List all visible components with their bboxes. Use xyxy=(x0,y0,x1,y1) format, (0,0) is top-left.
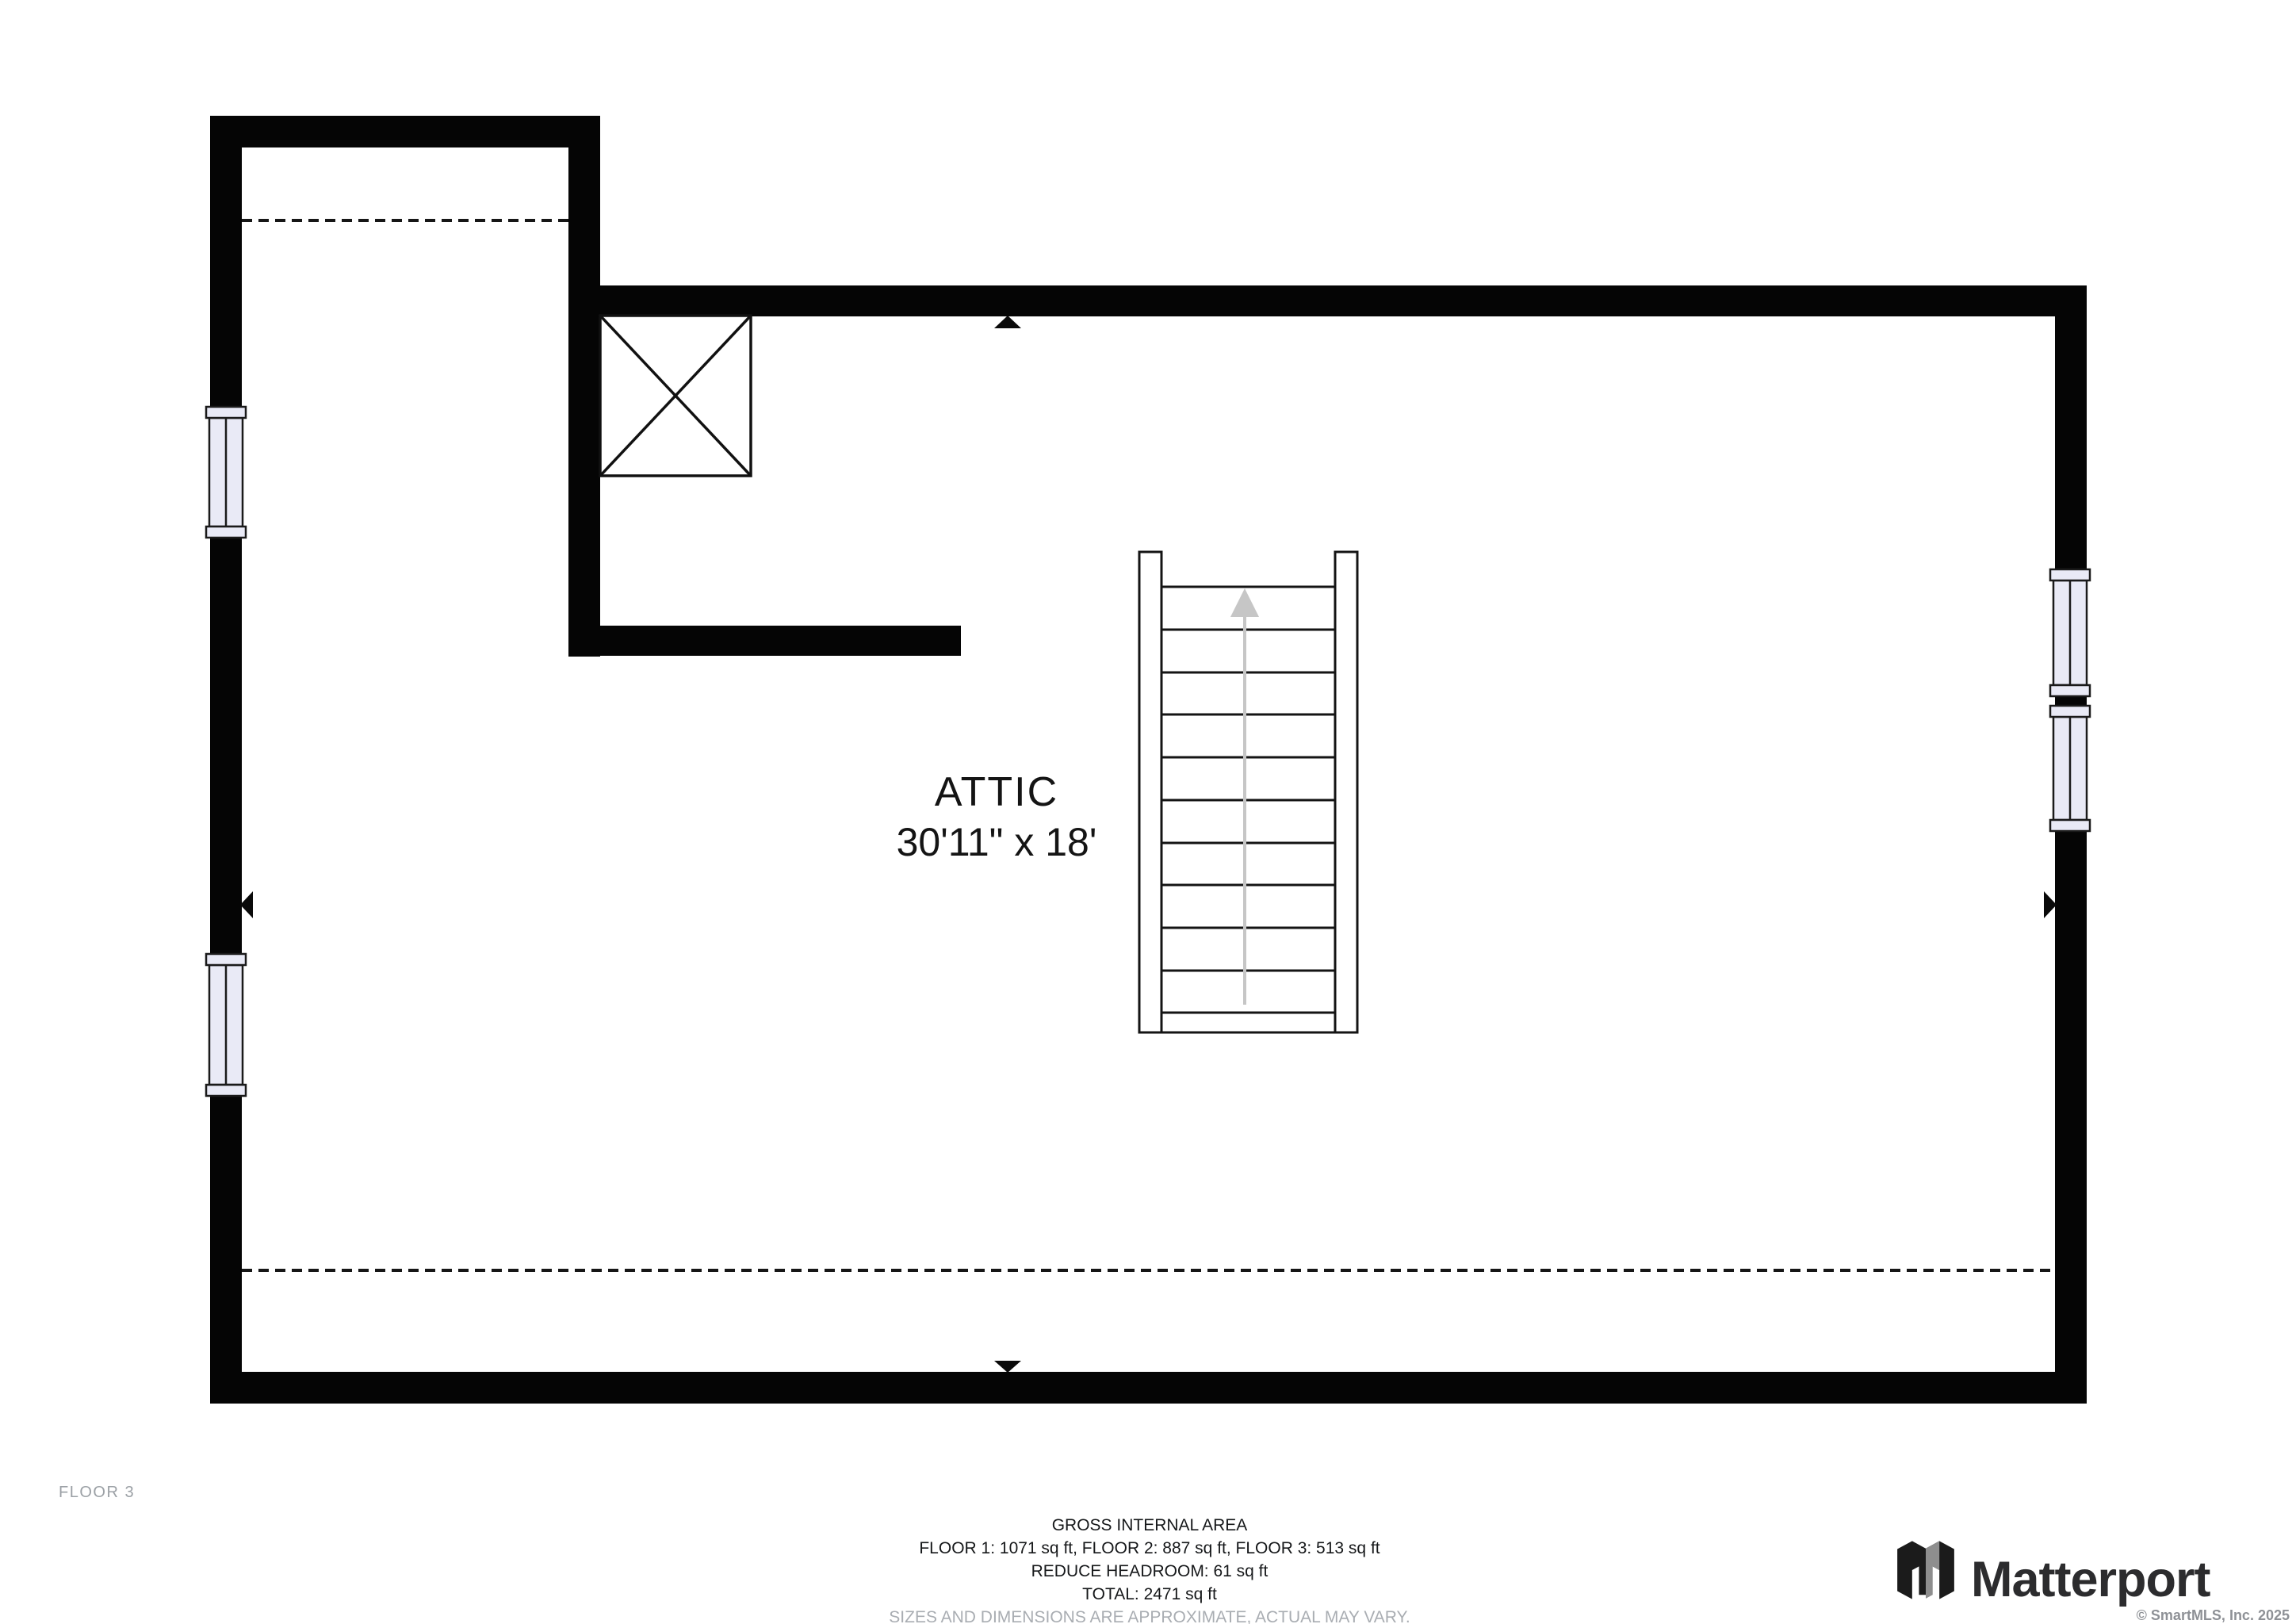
window-right-upper xyxy=(2050,569,2090,696)
wall-top-protrusion xyxy=(210,116,600,147)
staircase xyxy=(1139,552,1357,1032)
matterport-wordmark: Matterport xyxy=(1971,1552,2211,1607)
stair-treads xyxy=(1161,587,1335,971)
area-summary-reduce-headroom: REDUCE HEADROOM: 61 sq ft xyxy=(1031,1562,1269,1580)
wall-right xyxy=(2055,285,2087,1404)
wall-left xyxy=(210,116,242,1404)
wall-interior-horizontal xyxy=(568,626,961,656)
x-box-shaft-icon xyxy=(600,316,751,476)
area-summary-disclaimer: SIZES AND DIMENSIONS ARE APPROXIMATE, AC… xyxy=(889,1608,1410,1624)
area-summary-title: GROSS INTERNAL AREA xyxy=(1052,1516,1248,1534)
matterport-logo-icon xyxy=(1897,1541,1954,1599)
wall-marker-triangle-top xyxy=(994,316,1021,328)
room-label: ATTIC 30'11" x 18' xyxy=(897,769,1097,864)
room-dimensions: 30'11" x 18' xyxy=(897,820,1097,864)
floor-label: FLOOR 3 xyxy=(59,1484,135,1501)
area-summary: GROSS INTERNAL AREA FLOOR 1: 1071 sq ft,… xyxy=(889,1516,1410,1624)
floorplan-canvas: ATTIC 30'11" x 18' FLOOR 3 GROSS INTERNA… xyxy=(0,0,2296,1624)
wall-protrusion-right xyxy=(568,116,600,657)
copyright-text: © SmartMLS, Inc. 2025 xyxy=(2137,1607,2290,1623)
branding: Matterport © SmartMLS, Inc. 2025 xyxy=(1897,1541,2290,1623)
wall-top-main xyxy=(568,285,2087,316)
wall-bottom xyxy=(210,1372,2087,1404)
stair-bottom-bar xyxy=(1161,1013,1335,1032)
room-name: ATTIC xyxy=(935,769,1058,815)
area-summary-floors: FLOOR 1: 1071 sq ft, FLOOR 2: 887 sq ft,… xyxy=(919,1539,1380,1557)
wall-marker-triangle-right xyxy=(2044,891,2057,918)
window-left-upper xyxy=(206,407,246,538)
wall-marker-triangle-left xyxy=(240,891,253,918)
window-left-lower xyxy=(206,954,246,1096)
stair-rail-left xyxy=(1139,552,1161,1032)
area-summary-total: TOTAL: 2471 sq ft xyxy=(1082,1585,1217,1603)
window-right-lower xyxy=(2050,706,2090,831)
interior-walls xyxy=(568,626,961,656)
stair-rail-right xyxy=(1335,552,1357,1032)
stairs-up-arrow-icon xyxy=(1230,588,1259,1005)
wall-marker-triangle-bottom xyxy=(994,1361,1021,1373)
